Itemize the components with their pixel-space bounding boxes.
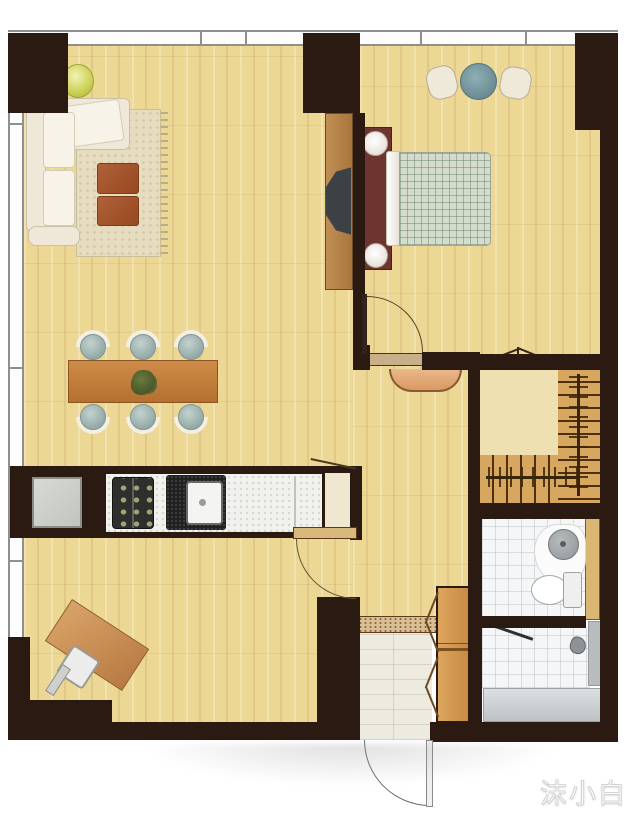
wall-bottom-left-thick [8,700,112,740]
window-mullion [8,367,24,369]
window-mullion [245,30,247,46]
wall-top-left [8,33,68,113]
counter-divider [294,477,296,529]
wall-top-pier [303,33,360,113]
window-mullion [8,123,24,125]
wall-bath-divider [468,616,586,628]
wall-bottom-east [430,722,618,742]
window-mullion [200,30,202,46]
toilet-tank [563,572,582,608]
stair-landing [480,370,558,455]
wall-right [600,33,618,742]
wall-bottom-left-thin [112,722,360,740]
bath-bench [483,688,601,722]
bath-shelf-strip [585,507,600,620]
table-centerpiece [132,370,155,393]
ottoman [97,163,139,194]
rug-fringe [161,112,168,254]
wardrobe-shelf-line [438,648,472,651]
wardrobe-shelf-line [438,643,472,644]
bedside-lamp [363,131,388,156]
wall-stairs-bottom [468,503,618,519]
kitchen-door-leaf [293,527,357,539]
exterior-shadow [140,744,560,786]
wall-entry-column [317,597,360,740]
bedside-lamp [364,243,388,268]
stair-stringer-ticks [488,467,578,487]
dining-chair [75,399,111,435]
ottoman [97,196,139,226]
sofa-cushion [43,170,75,226]
wall-stairs-left [468,370,480,517]
round-side-table [460,63,497,100]
bedroom-door-sill [370,353,422,366]
washbasin-drain [560,541,566,547]
dining-chair [125,399,161,435]
bed-blanket [399,152,491,246]
sink-drain [199,499,206,506]
fridge [32,477,82,528]
dining-chair [173,399,209,435]
hall-console [389,369,462,392]
floor-plan: 沫小白 [0,0,634,820]
window-mullion [8,560,24,562]
stove [112,477,154,529]
window-mullion [420,30,422,46]
sofa-armrest [28,226,80,246]
wall-stairs-top [468,354,618,370]
sofa-cushion [43,112,75,168]
watermark: 沫小白 [540,772,627,811]
window-mullion [525,30,527,46]
entry-floor [357,633,432,740]
